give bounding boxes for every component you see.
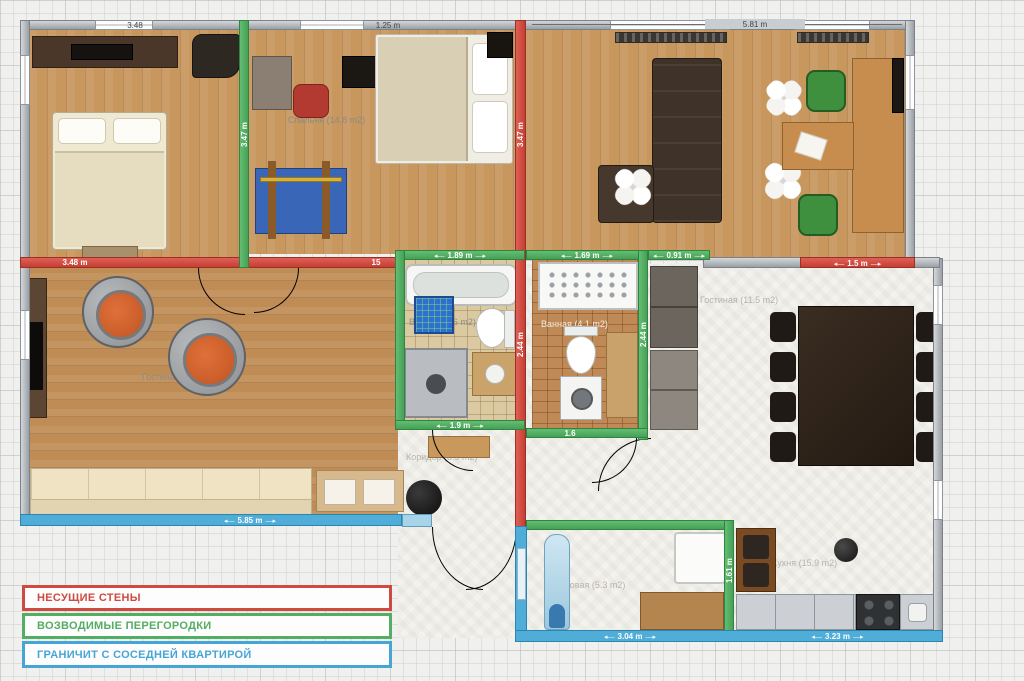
wall-connector[interactable] bbox=[912, 257, 940, 268]
dimension-label: 1.69 m bbox=[528, 251, 646, 260]
egg-chair[interactable] bbox=[82, 276, 154, 348]
egg-chair[interactable] bbox=[168, 318, 246, 396]
window[interactable] bbox=[905, 55, 915, 110]
wall-office-dining[interactable] bbox=[703, 257, 803, 268]
bed-single[interactable] bbox=[52, 112, 167, 250]
washer-door bbox=[571, 388, 593, 410]
kitchen-tall-cabinet[interactable] bbox=[736, 528, 776, 592]
shower-drain bbox=[426, 374, 446, 394]
dimension-label-vertical: 2.44 m bbox=[516, 310, 525, 380]
office-chair-green[interactable] bbox=[806, 70, 846, 112]
window[interactable] bbox=[933, 480, 943, 520]
room-label-kitchen: Кухня (15.9 m2) bbox=[772, 558, 837, 568]
radiator[interactable] bbox=[615, 32, 727, 43]
cabinet-door bbox=[743, 563, 769, 587]
dining-chair[interactable] bbox=[770, 352, 796, 382]
door-leaf[interactable] bbox=[517, 548, 526, 600]
shower-mat[interactable] bbox=[414, 296, 454, 334]
dimension-label: 3.23 m bbox=[740, 632, 935, 641]
blanket bbox=[55, 151, 164, 247]
wall-loadbearing-central[interactable] bbox=[515, 20, 526, 530]
legend-label: НЕСУЩИЕ СТЕНЫ bbox=[37, 592, 141, 604]
partition-storage-top[interactable] bbox=[526, 520, 730, 530]
corner-sofa[interactable] bbox=[652, 58, 722, 223]
sink bbox=[485, 364, 505, 384]
desk-return[interactable] bbox=[782, 122, 854, 170]
white-appliance[interactable] bbox=[674, 532, 726, 584]
propeller-table[interactable] bbox=[612, 166, 654, 208]
dimension-label: 3.04 m bbox=[535, 632, 725, 641]
stove[interactable] bbox=[856, 594, 900, 630]
dining-table[interactable] bbox=[798, 306, 914, 466]
dining-chair[interactable] bbox=[770, 312, 796, 342]
bath-cabinet[interactable] bbox=[472, 352, 516, 396]
window[interactable] bbox=[933, 285, 943, 325]
radiator[interactable] bbox=[797, 32, 869, 43]
window[interactable] bbox=[20, 55, 30, 105]
kitchen-sink bbox=[908, 603, 927, 622]
office-chair-green[interactable] bbox=[798, 194, 838, 236]
tv-on-dresser bbox=[71, 44, 133, 60]
jacuzzi[interactable] bbox=[538, 262, 638, 310]
drawer bbox=[363, 479, 395, 505]
red-chair[interactable] bbox=[293, 84, 329, 118]
wall-tv[interactable] bbox=[892, 58, 904, 113]
dimension-label: 1.9 m bbox=[398, 421, 522, 430]
bathtub-basin bbox=[413, 272, 509, 298]
blanket bbox=[378, 37, 468, 161]
partition-bath1-left[interactable] bbox=[395, 250, 405, 430]
legend-partitions: ВОЗВОДИМЫЕ ПЕРЕГОРОДКИ bbox=[22, 613, 392, 639]
gym-rack bbox=[268, 161, 276, 239]
sink-counter[interactable] bbox=[900, 594, 934, 630]
propeller-table[interactable] bbox=[764, 78, 804, 118]
armchair-dark[interactable] bbox=[192, 34, 240, 78]
dining-chair[interactable] bbox=[770, 392, 796, 422]
legend-label: ВОЗВОДИМЫЕ ПЕРЕГОРОДКИ bbox=[37, 620, 212, 632]
dimension-label: 1.89 m bbox=[398, 251, 522, 260]
jacuzzi-jets bbox=[546, 270, 630, 302]
paper bbox=[794, 131, 827, 161]
nightstand[interactable] bbox=[487, 32, 513, 58]
wall-tv[interactable] bbox=[342, 56, 378, 88]
dimension-label: 5.85 m bbox=[120, 516, 380, 525]
tv[interactable] bbox=[30, 322, 43, 390]
storage-shelf[interactable] bbox=[640, 592, 724, 630]
dimension-label: 3.48 m bbox=[30, 258, 120, 267]
dimension-label-vertical: 2.44 m bbox=[639, 300, 648, 370]
dimension-label-vertical: 3.47 m bbox=[240, 100, 249, 170]
dimension-label-vertical: 3.47 m bbox=[516, 100, 525, 170]
drawer bbox=[324, 479, 356, 505]
pillow bbox=[113, 118, 161, 144]
dimension-label: 15 bbox=[362, 258, 390, 267]
dimension-label: 1.5 m bbox=[802, 259, 913, 268]
gym-barbell bbox=[260, 177, 342, 182]
dimension-label: 3.48 bbox=[85, 21, 185, 29]
gym-bench[interactable] bbox=[255, 168, 347, 234]
egg-chair-cushion bbox=[96, 290, 146, 340]
dimension-label: 1.25 m bbox=[348, 21, 428, 29]
toilet-tank[interactable] bbox=[564, 326, 598, 336]
sideboard[interactable] bbox=[316, 470, 404, 512]
gym-rack bbox=[322, 161, 330, 239]
window[interactable] bbox=[795, 20, 870, 30]
door-leaf-blue[interactable] bbox=[402, 514, 432, 527]
room-label-dining: Гостиная (11.5 m2) bbox=[700, 295, 778, 305]
toilet-tank[interactable] bbox=[504, 310, 515, 348]
washing-machine[interactable] bbox=[560, 376, 602, 420]
pouf-black[interactable] bbox=[406, 480, 442, 516]
shower-cabin[interactable] bbox=[404, 348, 468, 418]
bath2-shelf[interactable] bbox=[606, 332, 638, 418]
iron[interactable] bbox=[549, 604, 565, 628]
egg-chair-cushion bbox=[183, 333, 236, 386]
pillow bbox=[472, 101, 508, 153]
kitchen-stool[interactable] bbox=[834, 538, 858, 562]
wardrobe[interactable] bbox=[650, 266, 698, 348]
dimension-label-vertical: 1.61 m bbox=[725, 538, 734, 604]
legend-neighbor: ГРАНИЧИТ С СОСЕДНЕЙ КВАРТИРОЙ bbox=[22, 641, 392, 668]
legend-load-bearing: НЕСУЩИЕ СТЕНЫ bbox=[22, 585, 392, 611]
window[interactable] bbox=[20, 310, 30, 360]
vanity-dresser[interactable] bbox=[252, 56, 292, 110]
cabinet-door bbox=[743, 535, 769, 559]
wardrobe[interactable] bbox=[650, 350, 698, 430]
dining-chair[interactable] bbox=[770, 432, 796, 462]
pillow bbox=[58, 118, 106, 144]
sofa-long[interactable] bbox=[30, 468, 312, 514]
floorplan-canvas: Спальня (14.8 m2) Гостиная (23.9 m2) Ван… bbox=[0, 0, 1024, 681]
kitchen-counter[interactable] bbox=[736, 594, 856, 630]
dimension-label: 0.91 m bbox=[646, 251, 712, 260]
dresser[interactable] bbox=[32, 36, 178, 68]
sofa-back bbox=[31, 499, 311, 515]
dimension-label: 1.6 bbox=[540, 429, 600, 438]
legend-label: ГРАНИЧИТ С СОСЕДНЕЙ КВАРТИРОЙ bbox=[37, 649, 252, 661]
dimension-label: 5.81 m bbox=[705, 19, 805, 29]
